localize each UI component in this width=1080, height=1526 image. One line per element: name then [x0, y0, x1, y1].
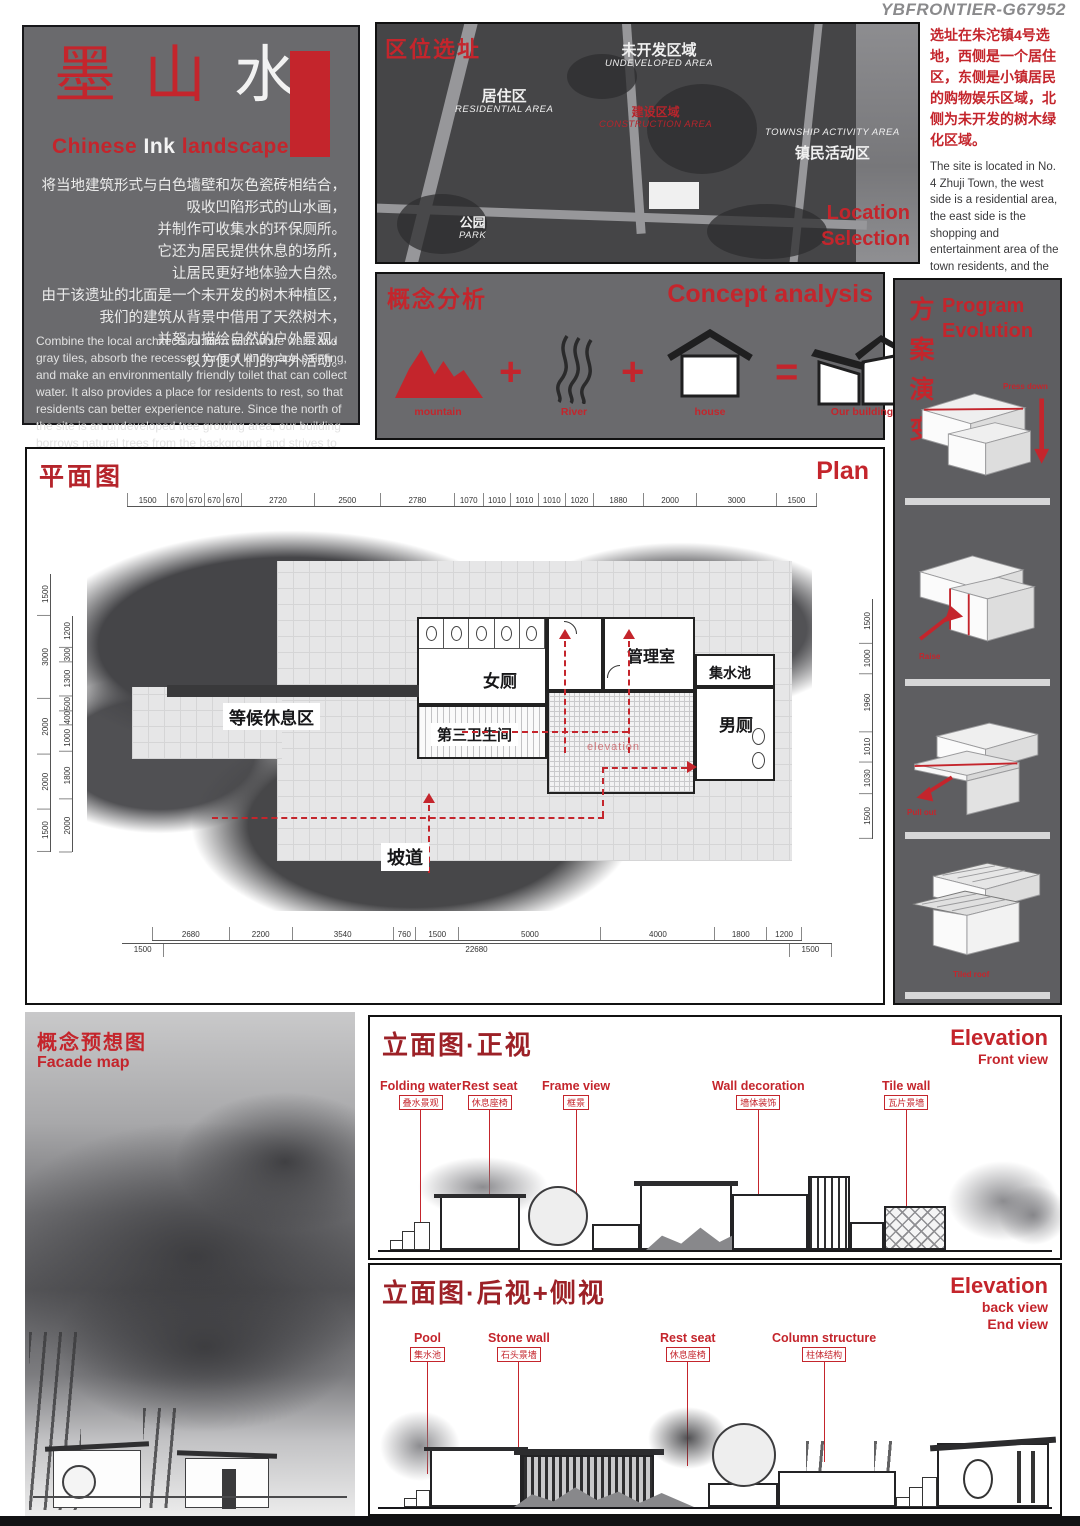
- dimension-value: 3000: [697, 493, 777, 506]
- evolution-step-1-label: Press down: [1003, 382, 1048, 391]
- ramp-label: 坡道: [381, 843, 429, 871]
- dimension-value: 2000: [37, 754, 50, 810]
- elevation-building: [937, 1443, 1049, 1507]
- cn-line: 我们的建筑从背景中借用了天然树木，: [38, 307, 346, 329]
- elevation-building: [430, 1449, 522, 1507]
- mountain-icon: [395, 342, 483, 398]
- evolution-step-2-label: Raise: [919, 652, 940, 661]
- door-slit: [222, 1469, 236, 1509]
- dimension-value: 1000: [859, 644, 872, 674]
- low-wall: [850, 1222, 884, 1250]
- label-en: Rest seat: [660, 1331, 716, 1345]
- concept-label-house: house: [665, 406, 755, 418]
- round-bush: [712, 1423, 776, 1487]
- facade-map-panel: 概念预想图 Facade map: [25, 1012, 355, 1516]
- dimension-value: 1800: [715, 927, 767, 940]
- concept-analysis-panel: 概念分析 Concept analysis + + = mountain Riv…: [375, 272, 885, 440]
- dimension-value: 1200: [767, 927, 802, 940]
- flow-dash: [602, 767, 604, 817]
- dimension-value: 500: [59, 697, 72, 711]
- dimension-value: 1960: [859, 674, 872, 732]
- plan-panel: 平面图 Plan 1500670670670670272025002780107…: [25, 447, 885, 1005]
- plus-operator: +: [499, 352, 522, 392]
- separator-bar: [905, 992, 1050, 999]
- ink-tree: [998, 1185, 1062, 1245]
- back-view-subtitle: back view: [950, 1299, 1048, 1316]
- cn-line: 让居民更好地体验大自然。: [38, 263, 346, 285]
- township-activity-label: TOWNSHIP ACTIVITY AREA 镇民活动区: [765, 128, 900, 162]
- dimension-value: 1500: [37, 810, 50, 852]
- label-cn: 休息座椅: [666, 1347, 710, 1362]
- label-cn: 柱体结构: [802, 1347, 846, 1362]
- ground-line: [33, 1496, 347, 1498]
- dimension-value: 1500: [37, 574, 50, 616]
- moon-window: [62, 1465, 96, 1499]
- subtitle-word-2: Ink: [144, 135, 176, 158]
- dimension-value: 1000: [59, 725, 72, 752]
- plan-title-en: Plan: [816, 457, 869, 486]
- women-toilet-label: 女厕: [483, 667, 517, 692]
- undeveloped-en: UNDEVELOPED AREA: [605, 59, 713, 70]
- construction-cn: 建设区域: [599, 106, 712, 120]
- dimension-value: 1500: [859, 794, 872, 839]
- elevation-note: elevation: [587, 741, 640, 753]
- label-en: Stone wall: [488, 1331, 550, 1345]
- poster-subtitle: Chinese Ink landscape: [52, 135, 289, 159]
- elevation-front-title-cn: 立面图·正视: [382, 1025, 533, 1062]
- front-view-subtitle: Front view: [950, 1051, 1048, 1068]
- cn-line: 并制作可收集水的环保厕所。: [38, 219, 346, 241]
- low-wall: [778, 1471, 896, 1507]
- dimension-value: 1800: [59, 752, 72, 799]
- dimension-value: 3000: [37, 616, 50, 699]
- entry-corridor: [547, 617, 603, 691]
- cn-line: 由于该遗址的北面是一个未开发的树木种植区，: [38, 285, 346, 307]
- moon-gate: [528, 1186, 588, 1246]
- bamboo-silhouette: [874, 1441, 900, 1471]
- dimension-value: 5000: [459, 927, 601, 940]
- flow-arrow-right-icon: [687, 761, 697, 773]
- title-char-2: 山: [144, 45, 206, 107]
- evo-en-line: Program: [942, 294, 1033, 319]
- label-cn: 石头景墙: [497, 1347, 541, 1362]
- tree-patch: [707, 204, 827, 259]
- dimension-value: 1500: [416, 927, 459, 940]
- bottom-outer-dimension-row: 1500226801500: [122, 943, 832, 957]
- site-satellite-map: 区位选址 居住区 RESIDENTIAL AREA 未开发区域 UNDEVELO…: [375, 22, 920, 264]
- cn-line: 它还为居民提供休息的场所，: [38, 241, 346, 263]
- evolution-step-4-label: Tiled roof: [953, 970, 989, 979]
- elevation-back-title-cn: 立面图·后视+侧视: [382, 1273, 606, 1310]
- label-cn: 叠水景观: [399, 1095, 443, 1110]
- flow-dash: [564, 641, 566, 753]
- park-cn: 公园: [459, 216, 486, 231]
- dimension-value: 2680: [152, 927, 230, 940]
- room-men-toilet: 男厕: [695, 687, 775, 781]
- ink-wash: [55, 1262, 355, 1432]
- flow-arrow-up-icon: [559, 629, 571, 639]
- dimension-value: 1500: [777, 493, 817, 506]
- intro-panel: 墨 山 水 Chinese Ink landscape 将当地建筑形式与白色墙壁…: [22, 25, 360, 425]
- label-en: Frame view: [542, 1079, 610, 1093]
- residential-cn: 居住区: [455, 88, 553, 105]
- stair-step: [414, 1222, 430, 1250]
- caption-line: Location: [821, 200, 910, 226]
- end-view-subtitle: End view: [950, 1316, 1048, 1333]
- evolution-step-3-label: Pull out: [907, 808, 936, 817]
- construction-site-box: [649, 182, 699, 209]
- dimension-value: 1500: [859, 599, 872, 644]
- construction-area-label: 建设区域 CONSTRUCTION AREA: [599, 106, 712, 131]
- ramp-arrow-icon: [423, 793, 435, 803]
- elevation-building: [440, 1196, 520, 1250]
- dimension-value: 1200: [59, 616, 72, 648]
- evo-en-line: Evolution: [942, 319, 1033, 344]
- men-toilet-label: 男厕: [719, 711, 753, 736]
- dimension-value: 300: [59, 648, 72, 662]
- dimension-value: 1300: [59, 662, 72, 696]
- separator-bar: [905, 832, 1050, 839]
- left-inner-dimension-column: 12003001300500400100018002000: [59, 616, 73, 852]
- subtitle-word-1: Chinese: [52, 135, 137, 158]
- township-cn: 镇民活动区: [765, 145, 900, 162]
- ink-wash: [175, 1092, 355, 1232]
- facade-building: [53, 1450, 141, 1508]
- watermark: YBFRONTIER-G67952: [881, 0, 1066, 20]
- title-char-3: 水: [234, 45, 296, 107]
- courtyard: elevation: [547, 691, 695, 794]
- dimension-value: 670: [224, 493, 243, 506]
- map-tag-label: 区位选址: [385, 32, 481, 64]
- dimension-value: 2000: [644, 493, 697, 506]
- room-management: 管理室: [603, 617, 695, 691]
- elevation-front-title-en: Elevation Front view: [950, 1025, 1048, 1068]
- house-icon: [665, 326, 755, 402]
- dimension-value: 1010: [859, 732, 872, 763]
- label-en: Folding water: [380, 1079, 461, 1093]
- site-description: 选址在朱沱镇4号选地，西侧是一个居住区，东侧是小镇居民的购物娱乐区域，北侧为未开…: [930, 25, 1064, 267]
- bottom-dimension-row: 26802200354076015005000400018001200: [152, 927, 802, 941]
- dimension-value: 1500: [790, 944, 832, 957]
- dimension-value: 400: [59, 711, 72, 725]
- location-selection-caption: Location Selection: [821, 200, 910, 252]
- toilet-stalls: [419, 619, 545, 649]
- column-post: [1017, 1451, 1021, 1503]
- label-cn: 集水池: [410, 1347, 445, 1362]
- dimension-value: 1500: [127, 493, 168, 506]
- program-evolution-panel: 方 案 演 变 Program Evolution Press down: [893, 278, 1062, 1005]
- dimension-value: 670: [168, 493, 187, 506]
- cn-line: 吸收凹陷形式的山水画，: [38, 197, 346, 219]
- label-cn: 瓦片景墙: [884, 1095, 928, 1110]
- concept-title-cn: 概念分析: [387, 280, 487, 314]
- flow-arrow-up-icon: [623, 629, 635, 639]
- dimension-value: 2000: [37, 699, 50, 755]
- label-cn: 墙体装饰: [736, 1095, 780, 1110]
- oval-window: [963, 1459, 993, 1499]
- dimension-value: 1010: [511, 493, 538, 506]
- roof-line: [514, 1449, 664, 1455]
- flow-dash: [462, 731, 628, 733]
- roof-line: [424, 1447, 528, 1451]
- evolution-step-3-diagram: [909, 712, 1049, 822]
- equals-operator: =: [775, 352, 798, 392]
- dimension-value: 22680: [164, 944, 789, 957]
- site-text-cn: 选址在朱沱镇4号选地，西侧是一个居住区，东侧是小镇居民的购物娱乐区域，北侧为未开…: [930, 25, 1064, 151]
- concept-label-river: River: [529, 406, 619, 418]
- construction-en: CONSTRUCTION AREA: [599, 120, 712, 131]
- dimension-value: 760: [394, 927, 416, 940]
- label-en: Wall decoration: [712, 1079, 805, 1093]
- facade-building: [185, 1458, 269, 1508]
- low-wall: [592, 1224, 640, 1250]
- elevation-word: Elevation: [950, 1273, 1048, 1298]
- label-cn: 框景: [563, 1095, 589, 1110]
- toilet-fixture: [752, 728, 765, 745]
- dimension-value: 1500: [122, 944, 164, 957]
- residential-en: RESIDENTIAL AREA: [455, 105, 553, 116]
- third-toilet-label: 第三卫生间: [431, 723, 518, 746]
- residential-area-label: 居住区 RESIDENTIAL AREA: [455, 88, 553, 116]
- dimension-value: 2500: [315, 493, 381, 506]
- evolution-title-en: Program Evolution: [942, 294, 1033, 344]
- cn-line: 将当地建筑形式与白色墙壁和灰色瓷砖相结合，: [38, 175, 346, 197]
- plan-title-cn: 平面图: [39, 457, 123, 493]
- top-dimension-row: 1500670670670670272025002780107010101010…: [127, 493, 817, 507]
- river-icon: [545, 332, 601, 404]
- room-pool: 集水池: [695, 654, 775, 687]
- dimension-value: 2720: [242, 493, 314, 506]
- elevation-back-title-en: Elevation back view End view: [950, 1273, 1048, 1333]
- waiting-area-wall: [167, 685, 419, 697]
- bamboo-silhouette: [143, 1408, 177, 1508]
- management-label: 管理室: [627, 643, 675, 667]
- evo-char: 方: [907, 290, 937, 330]
- facade-title-cn: 概念预想图: [37, 1026, 147, 1055]
- flow-dash: [212, 817, 604, 819]
- right-dimension-column: 150010001960101010301500: [859, 599, 873, 839]
- dimension-value: 2780: [381, 493, 455, 506]
- dimension-value: 4000: [601, 927, 715, 940]
- park-en: PARK: [459, 231, 486, 242]
- decorated-tower: [808, 1176, 850, 1250]
- evolution-step-2-diagram: [909, 542, 1049, 652]
- presentation-board: YBFRONTIER-G67952 墨 山 水 Chinese Ink land…: [0, 0, 1080, 1526]
- elevation-word: Elevation: [950, 1025, 1048, 1050]
- evo-char: 案: [907, 330, 937, 370]
- dimension-value: 670: [187, 493, 206, 506]
- roof-line: [434, 1194, 526, 1198]
- pool-label: 集水池: [709, 663, 751, 683]
- label-en: Rest seat: [462, 1079, 518, 1093]
- dimension-value: 1880: [594, 493, 644, 506]
- caption-line: Selection: [821, 226, 910, 252]
- front-elevation-drawing: [378, 1165, 1052, 1252]
- concept-title-en: Concept analysis: [667, 280, 873, 309]
- left-outer-dimension-column: 15003000200020001500: [37, 574, 51, 852]
- elevation-front-panel: 立面图·正视 Elevation Front view Folding wate…: [368, 1015, 1062, 1260]
- flow-dash: [628, 641, 630, 753]
- title-char-1: 墨: [54, 45, 116, 107]
- bottom-bar: [0, 1516, 1080, 1526]
- toilet-fixture: [752, 752, 765, 769]
- separator-bar: [905, 498, 1050, 505]
- dimension-value: 3540: [293, 927, 394, 940]
- dimension-value: 1020: [566, 493, 594, 506]
- roof-line: [634, 1181, 738, 1186]
- dimension-value: 1030: [859, 763, 872, 794]
- red-accent-block: [290, 51, 330, 157]
- dimension-value: 1070: [455, 493, 484, 506]
- label-en: Tile wall: [882, 1079, 930, 1093]
- stair-step: [416, 1490, 430, 1507]
- subtitle-word-3: landscape: [182, 135, 289, 158]
- label-en: Pool: [414, 1331, 441, 1345]
- column-post: [1031, 1451, 1035, 1503]
- dimension-value: 1010: [484, 493, 511, 506]
- township-en: TOWNSHIP ACTIVITY AREA: [765, 128, 900, 139]
- elevation-back-panel: 立面图·后视+侧视 Elevation back view End view P…: [368, 1263, 1062, 1516]
- park-label: 公园 PARK: [459, 216, 486, 242]
- label-en: Column structure: [772, 1331, 876, 1345]
- bamboo-silhouette: [806, 1441, 832, 1471]
- concept-label-mountain: mountain: [393, 406, 483, 418]
- tile-wall: [884, 1206, 946, 1250]
- dimension-value: 2200: [230, 927, 293, 940]
- evolution-step-4-diagram: [909, 852, 1049, 962]
- waiting-area-label: 等候休息区: [223, 703, 320, 730]
- room-women-toilet: 女厕: [417, 617, 547, 705]
- label-cn: 休息座椅: [468, 1095, 512, 1110]
- plus-operator: +: [621, 352, 644, 392]
- poster-title: 墨 山 水: [54, 45, 304, 107]
- separator-bar: [905, 679, 1050, 686]
- dimension-value: 1010: [539, 493, 566, 506]
- facade-title-en: Facade map: [37, 1054, 129, 1072]
- dimension-value: 2000: [59, 800, 72, 852]
- elevation-building: [732, 1194, 808, 1250]
- stair-step: [922, 1477, 937, 1507]
- back-elevation-drawing: [378, 1417, 1052, 1509]
- dimension-value: 670: [205, 493, 224, 506]
- evolution-step-1-diagram: [911, 378, 1051, 488]
- flow-dash: [602, 767, 687, 769]
- undeveloped-cn: 未开发区域: [605, 42, 713, 59]
- undeveloped-area-label: 未开发区域 UNDEVELOPED AREA: [605, 42, 713, 70]
